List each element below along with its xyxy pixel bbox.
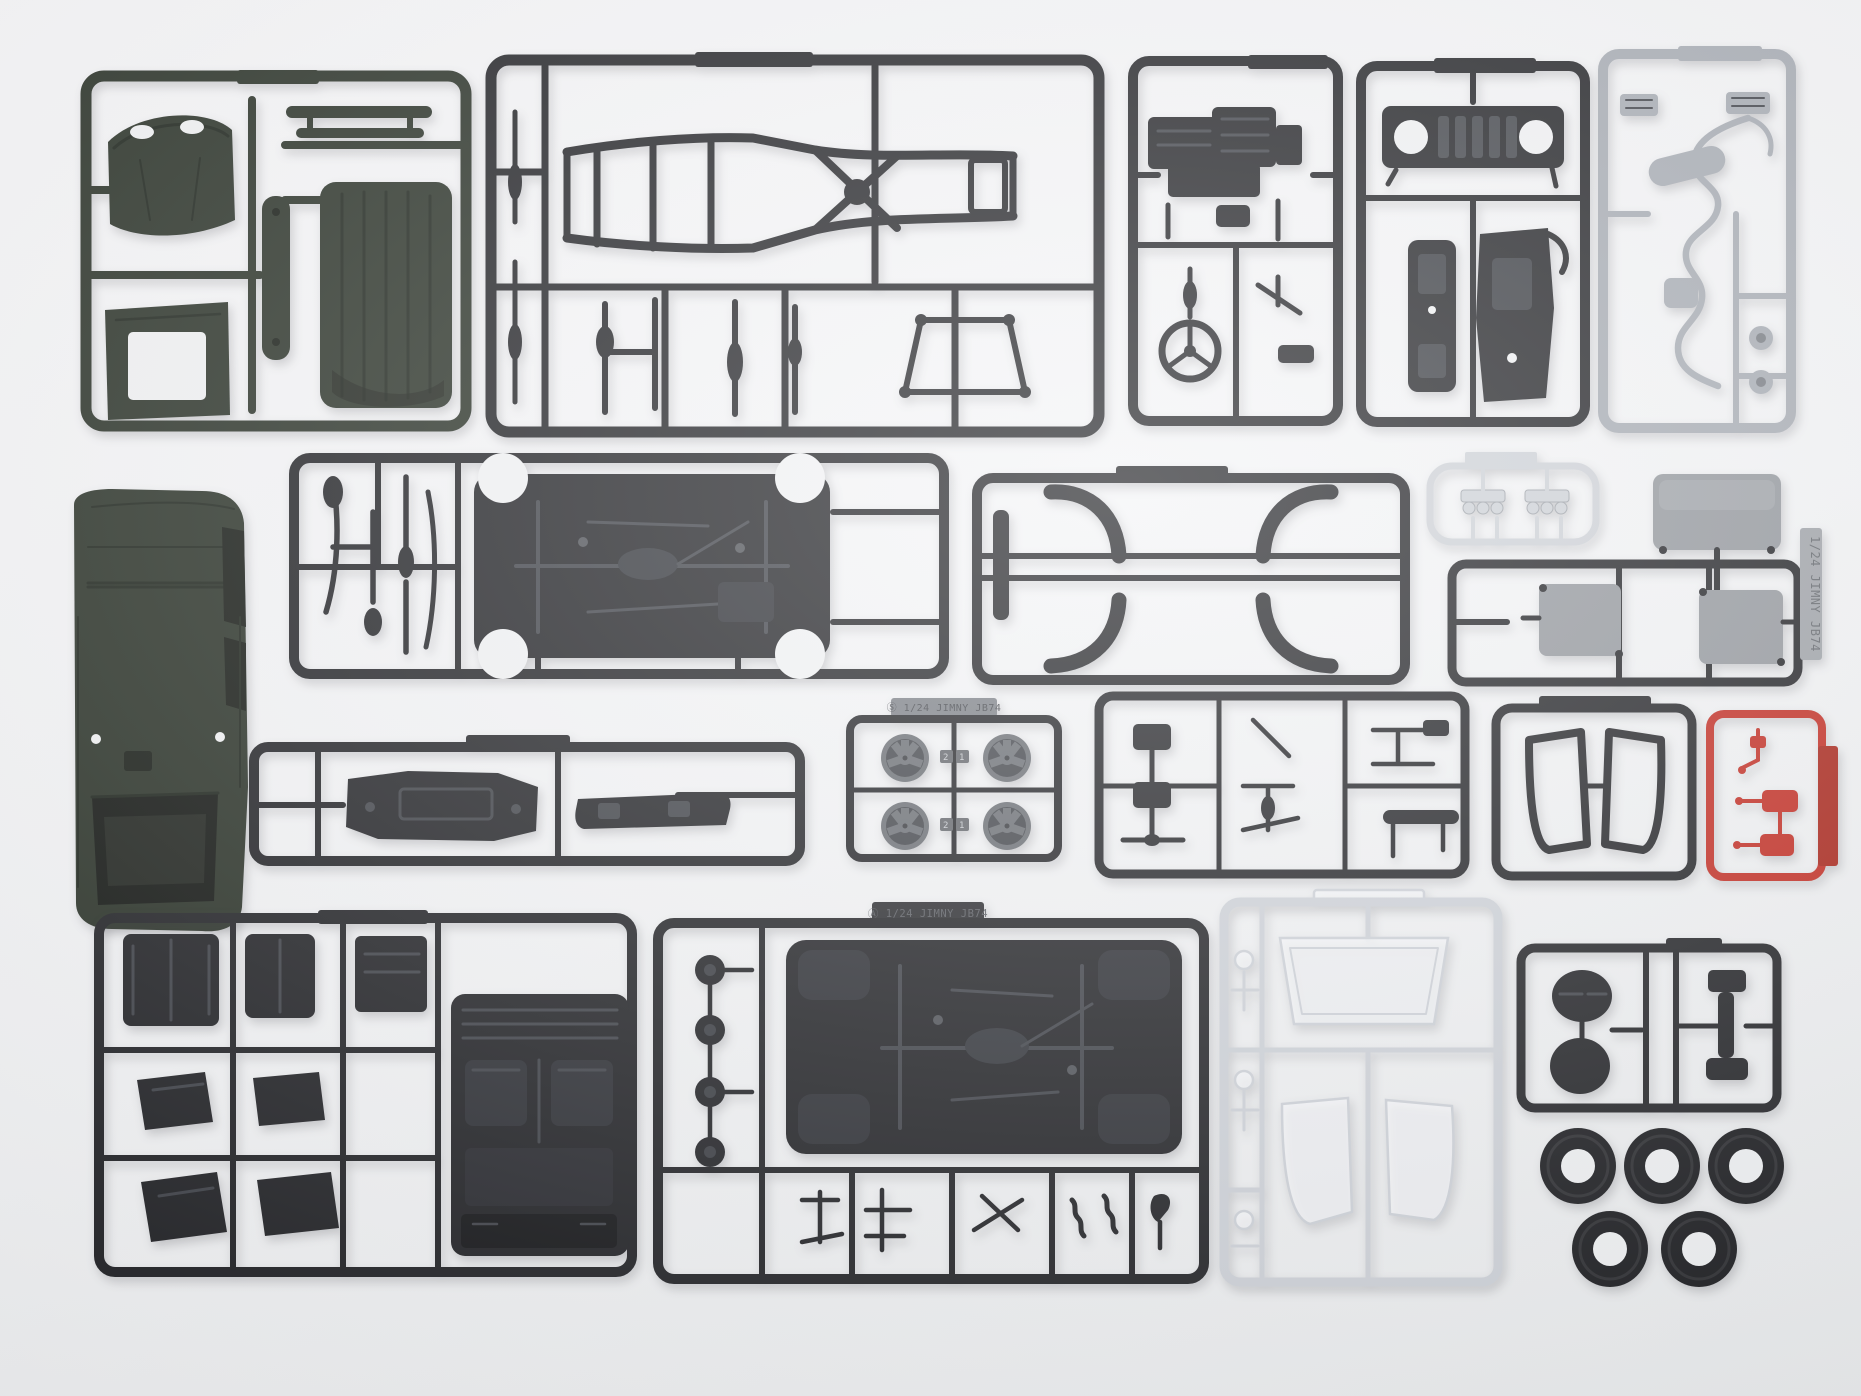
- tire: [1540, 1128, 1616, 1204]
- svg-text:2: 2: [943, 821, 949, 831]
- rear-bumper-part: [1476, 228, 1566, 402]
- brake-disc-parts: [1749, 326, 1773, 394]
- rear-window-mask-part: [1653, 474, 1781, 590]
- heat-shield-parts: [1620, 92, 1770, 116]
- body-shell-part: [74, 489, 248, 931]
- door-window-frame-parts: [1529, 732, 1661, 850]
- svg-text:1: 1: [959, 821, 965, 831]
- sprue-wheels: Ⓢ 1/24 JIMNY JB74 2 1 2 1: [845, 698, 1063, 863]
- windshield-part: [1280, 938, 1448, 1024]
- sprue-spare-wheel: [1516, 938, 1782, 1113]
- red-sprue-tag: [1818, 746, 1838, 866]
- sprue-body-panels-green: [80, 70, 472, 432]
- svg-text:1: 1: [959, 753, 965, 763]
- sprue-seats-interior: [93, 910, 638, 1280]
- roof-panel-part: [320, 182, 452, 408]
- front-grille-part: [1382, 106, 1564, 186]
- tire: [1624, 1128, 1700, 1204]
- hood-part: [108, 115, 235, 235]
- rubber-tires: [1538, 1126, 1788, 1291]
- sprue-fender-flares: [971, 452, 1411, 688]
- front-panel-part: [105, 302, 230, 420]
- front-bumper-part: [346, 771, 538, 841]
- sprue-door-frames: [1491, 696, 1697, 882]
- sprue-clear-windows: [1218, 890, 1504, 1290]
- roof-rail-parts: [286, 106, 432, 138]
- sprue-engine: [1128, 55, 1343, 427]
- side-window-mask-parts: [1523, 584, 1799, 666]
- sprue-chassis-frame: [485, 52, 1105, 440]
- hinge-bracket-parts: [1676, 970, 1777, 1080]
- brake-plate-parts: [695, 955, 752, 1167]
- gearbox-parts: [1168, 201, 1278, 239]
- sprue-bumper-valance: [248, 735, 806, 867]
- vertical-jb74-tag: 1/24 JIMNY JB74: [1800, 528, 1822, 660]
- axle-spring-parts: [802, 1190, 1170, 1250]
- svg-text:2: 2: [943, 753, 949, 763]
- small-clear-parts: [1232, 951, 1258, 1246]
- interior-tub-part: [451, 994, 629, 1256]
- body-shell-green: [52, 487, 258, 935]
- tire: [1661, 1211, 1737, 1287]
- tire: [1572, 1211, 1648, 1287]
- floor-pan-a-part: [786, 940, 1182, 1154]
- column-lever-parts: [1183, 269, 1314, 363]
- pillar-strip-part: [262, 196, 290, 360]
- sprue-tag-s: Ⓢ 1/24 JIMNY JB74: [887, 698, 1002, 717]
- ladder-frame-part: [567, 138, 1013, 249]
- sprue-underbody-suspension: [288, 452, 950, 680]
- photo-model-kit-sprues: 1/24 JIMNY JB74 Ⓢ 1/24 JIM: [0, 0, 1861, 1396]
- runner: [833, 512, 944, 622]
- tire: [1708, 1128, 1784, 1204]
- sprue-exhaust-gray: [1598, 46, 1796, 434]
- sprue-window-masks: 1/24 JIMNY JB74: [1447, 472, 1827, 688]
- wheel-tag-text: Ⓢ 1/24 JIMNY JB74: [887, 702, 1002, 714]
- window-tag-text: 1/24 JIMNY JB74: [1808, 536, 1822, 652]
- front-bumper-part: [1408, 240, 1456, 392]
- sprue-tail-lights-red: [1706, 708, 1840, 883]
- valance-bar-part: [575, 793, 730, 829]
- sprue-grille-bumpers: [1356, 58, 1590, 428]
- floor-pan-part: [474, 453, 830, 679]
- sprue-chassis-a: Ⓐ 1/24 JIMNY JB74: [652, 900, 1210, 1285]
- tail-lamp-parts: [1733, 730, 1798, 856]
- engine-block-parts: [1148, 107, 1302, 197]
- spare-cover-parts: [1550, 970, 1642, 1094]
- seat-back-parts: [123, 934, 427, 1026]
- sprue-small-parts-b: [1093, 690, 1471, 880]
- steering-wheel-part: [1162, 323, 1218, 379]
